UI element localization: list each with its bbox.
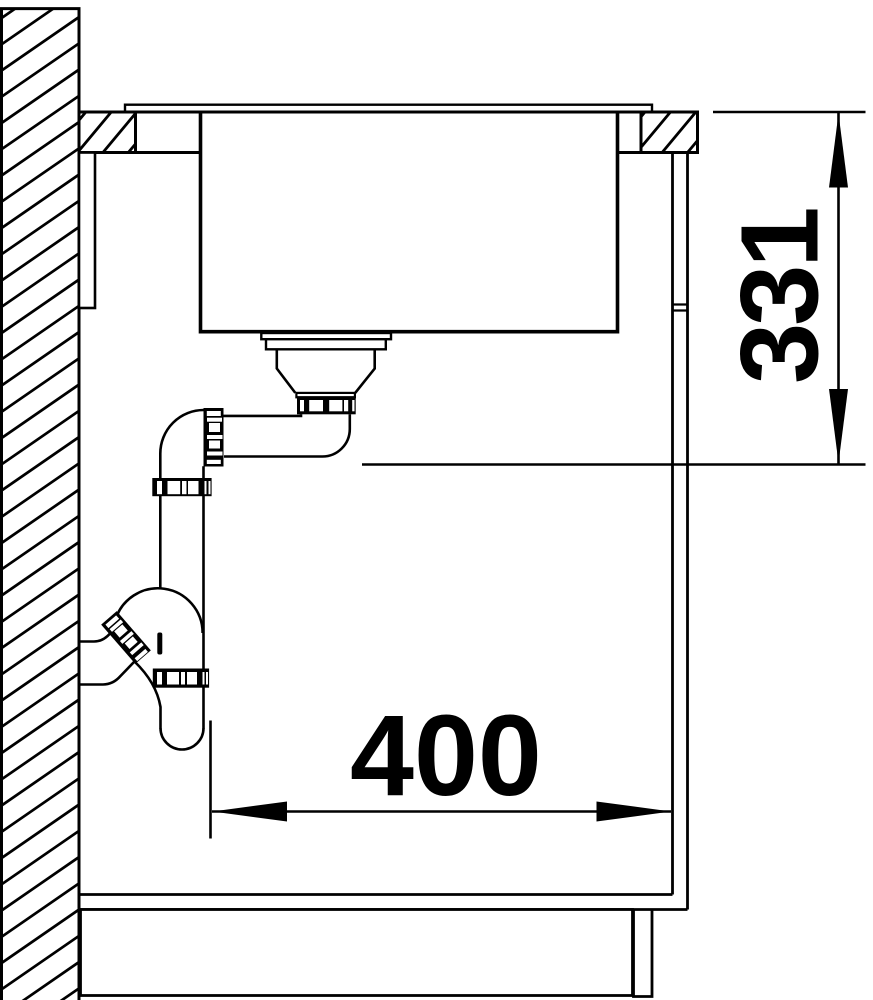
svg-text:331: 331	[719, 209, 842, 384]
svg-text:400: 400	[350, 692, 542, 820]
